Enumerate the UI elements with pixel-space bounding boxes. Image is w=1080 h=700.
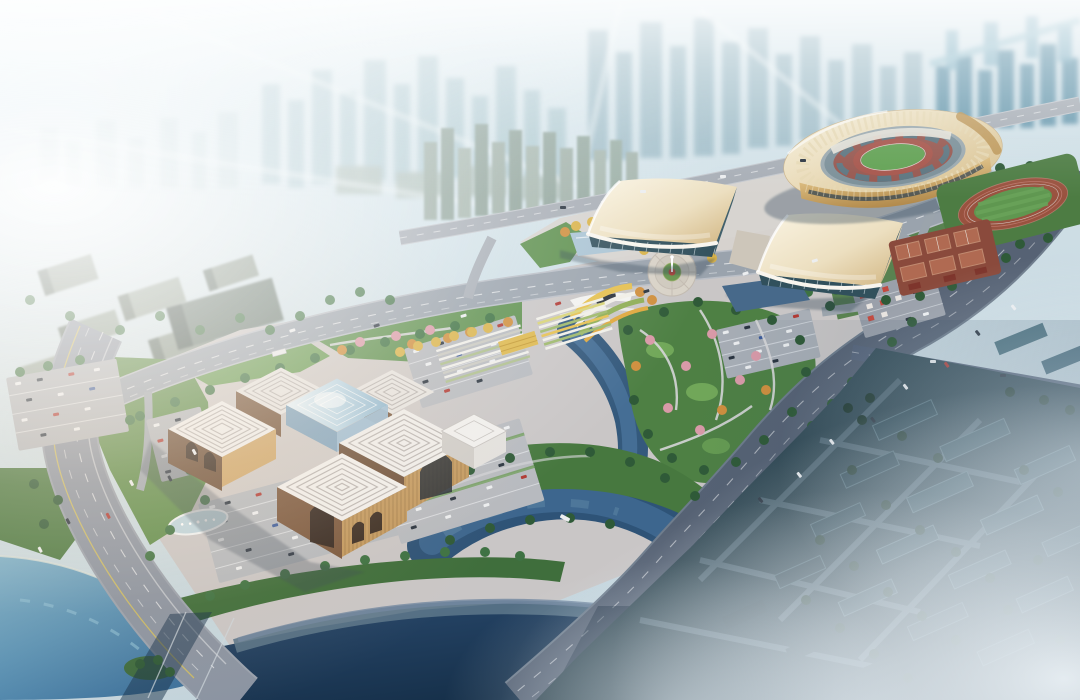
aerial-rendering: Aerial architectural rendering at dusk o… xyxy=(0,0,1080,700)
rendering-canvas xyxy=(0,0,1080,700)
fog-right-edge xyxy=(0,0,1080,700)
